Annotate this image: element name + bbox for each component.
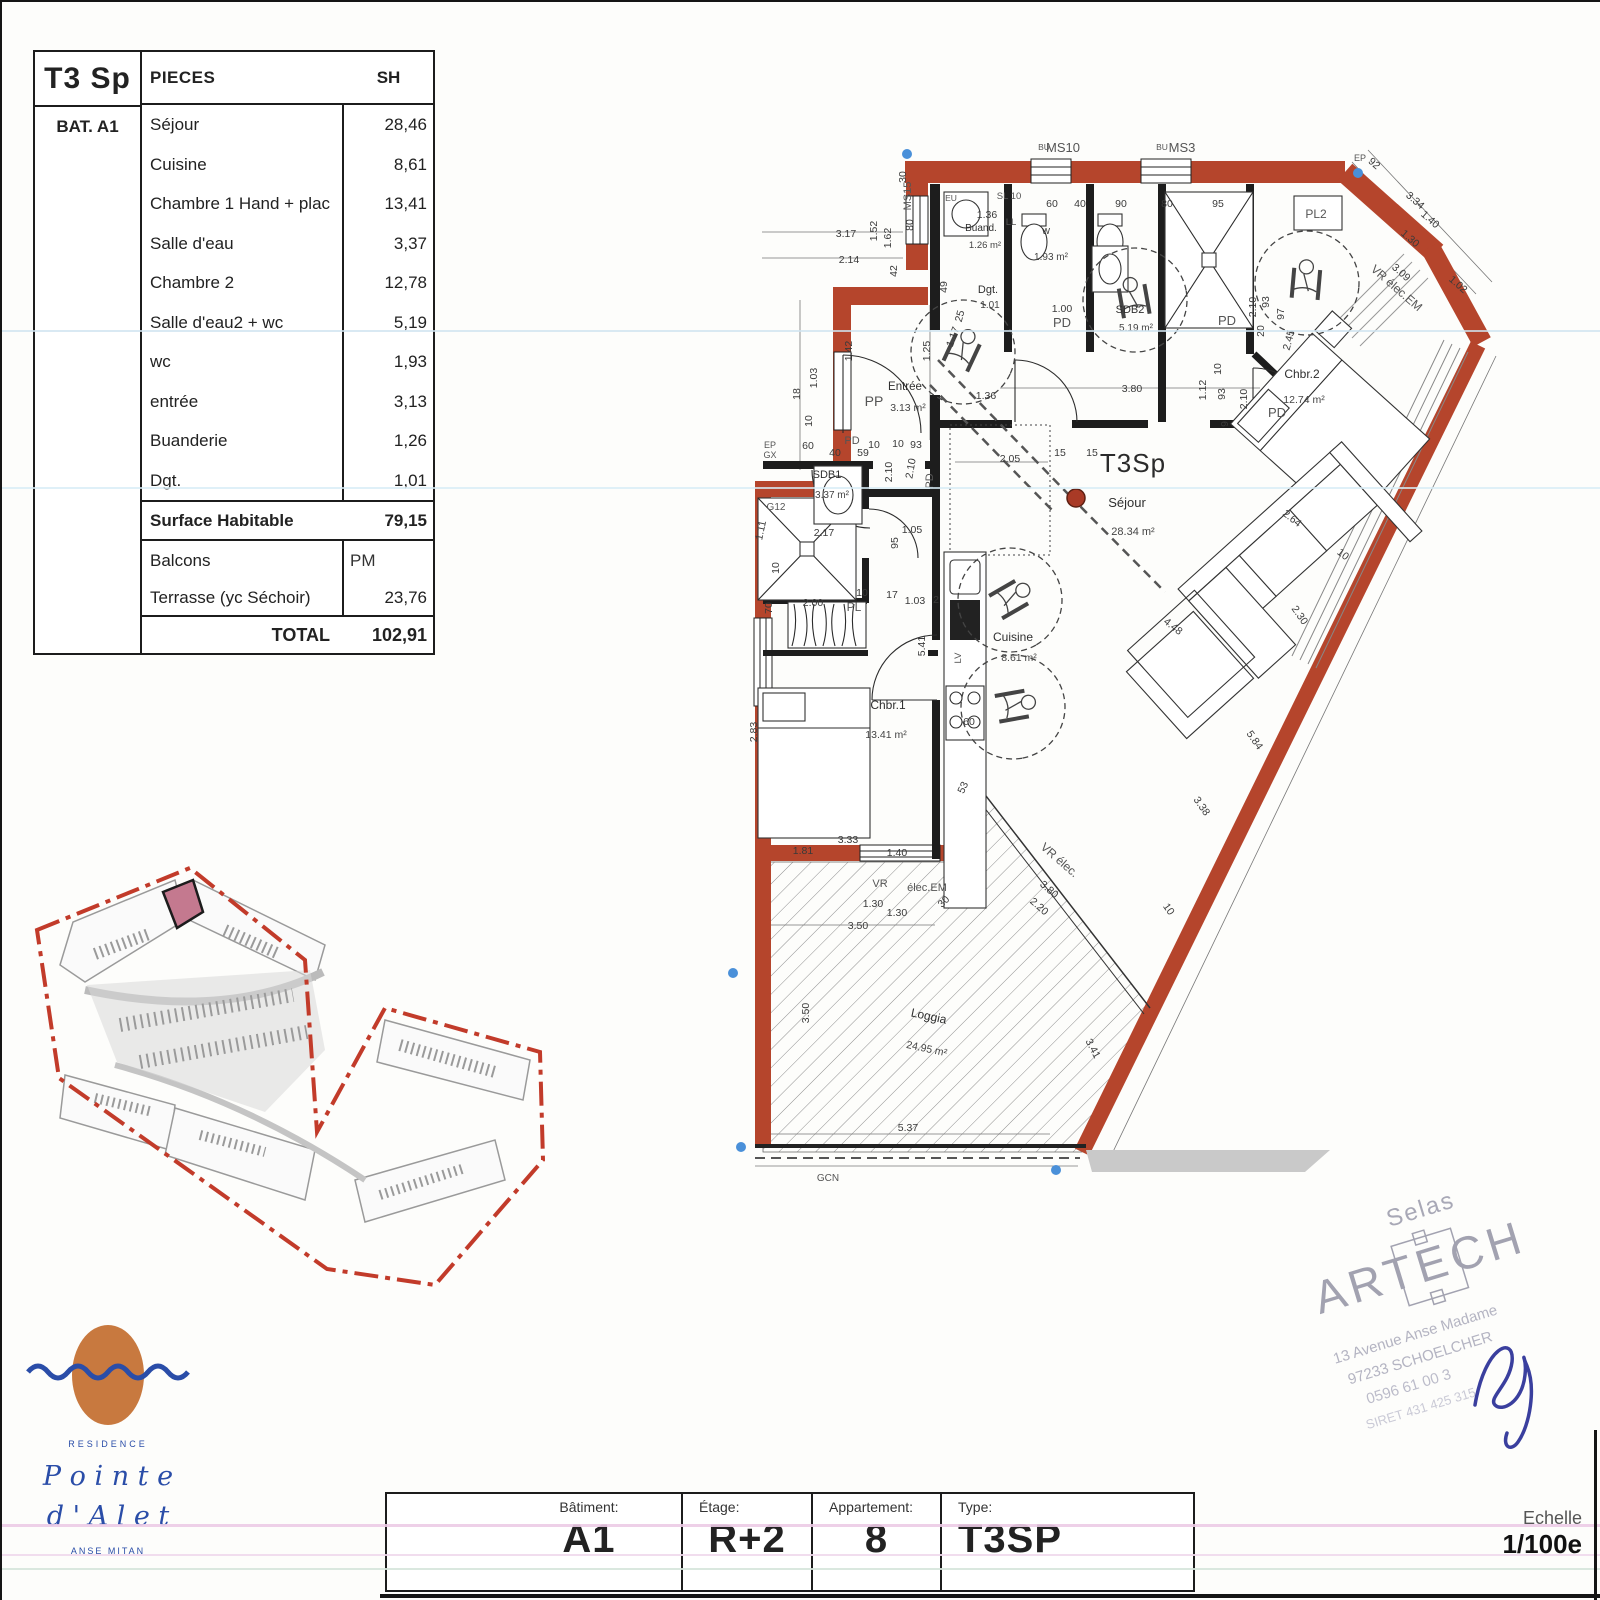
dimension-label: 92	[1366, 155, 1383, 172]
dimension-label: 1.12	[1197, 380, 1209, 401]
table-row: Cuisine8,61	[142, 145, 435, 185]
window-ms10	[1031, 159, 1071, 183]
row-label: Salle d'eau2 + wc	[142, 313, 342, 333]
room-name: SDB1	[813, 469, 842, 481]
dimension-label: 60	[1046, 198, 1058, 210]
title-label: Appartement:	[813, 1499, 940, 1515]
row-label: Buanderie	[142, 431, 342, 451]
plan-tag: PD	[1268, 405, 1286, 420]
dimension-label: 93	[1216, 388, 1228, 400]
row-label: wc	[142, 352, 342, 372]
dimension-label: 10	[1335, 546, 1352, 563]
stove	[946, 686, 984, 740]
dimension-label: 2.10	[1238, 389, 1250, 410]
dimension-label: 49	[938, 281, 950, 293]
title-label: Bâtiment:	[387, 1499, 681, 1515]
room-area: 28.34 m²	[1111, 526, 1155, 538]
row-label: Balcons	[142, 551, 342, 571]
unit-label: T3Sp	[1100, 448, 1166, 478]
bed-chbr1	[758, 688, 870, 838]
table-row: Dgt.1,01	[142, 461, 435, 501]
floor-plan-drawing: T3Sp Séjour28.34 m²Cuisine8.61 m²Chbr.11…	[690, 120, 1500, 1190]
dimension-label: 10	[868, 439, 880, 451]
row-label: TOTAL	[142, 625, 342, 646]
dimension-label: 1.25	[921, 341, 933, 362]
row-label: Chambre 2	[142, 273, 342, 293]
title-cell-appartement: Appartement: 8	[811, 1494, 940, 1590]
dimension-label: 1.30	[863, 898, 884, 910]
dimension-label: 3.17	[836, 228, 857, 240]
structural-column	[1067, 489, 1085, 507]
dimension-label: 2.83	[748, 722, 760, 743]
room-name: Chbr.2	[1284, 367, 1320, 381]
site-plan-inset	[25, 850, 545, 1290]
plan-tag: MS3	[1169, 140, 1196, 155]
row-value: 23,76	[342, 580, 435, 615]
dimension-label: 15	[1086, 447, 1098, 459]
room-name: Buand.	[965, 223, 997, 234]
washbasin	[1092, 246, 1128, 292]
room-name: Dgt.	[978, 284, 998, 296]
plan-tag: LL	[1006, 217, 1017, 228]
dimension-label: 2	[933, 594, 939, 606]
dimension-label: 10	[770, 562, 782, 574]
dimension-label: 2.10	[903, 457, 918, 479]
areas-table: T3 Sp BAT. A1 PIECES SH Séjour28,46 Cuis…	[33, 50, 435, 655]
plan-tag: PD	[1218, 313, 1236, 328]
residence-logo: RESIDENCE P o i n t e d ' A l e t ANSE M…	[20, 1290, 240, 1580]
table-row: entrée3,13	[142, 382, 435, 422]
row-value: 1,26	[342, 421, 435, 461]
table-rows: Séjour28,46 Cuisine8,61 Chambre 1 Hand +…	[142, 105, 435, 502]
room-area: 3.13 m²	[890, 402, 926, 414]
table-row: Séjour28,46	[142, 105, 435, 145]
plan-tag: MS15	[902, 182, 914, 211]
dimension-label: 2.10	[1247, 297, 1259, 318]
dimension-label: 70	[763, 602, 775, 614]
room-name: SDB2	[1116, 304, 1145, 316]
dimension-label: 10	[856, 587, 868, 599]
title-label: Étage:	[683, 1499, 811, 1515]
room-name: W	[1042, 226, 1050, 236]
table-row: Buanderie1,26	[142, 421, 435, 461]
table-row: Salle d'eau3,37	[142, 224, 435, 264]
dimension-label: 9	[1219, 421, 1231, 427]
dimension-label: 1.05	[902, 524, 923, 536]
dimension-label: 1.36	[977, 209, 998, 221]
dimension-label: 80	[904, 219, 916, 231]
plan-tag: élec.EM	[907, 882, 947, 894]
plan-tag: PP	[865, 393, 884, 409]
dimension-label: 1.30	[887, 907, 908, 919]
dimension-label: 3.38	[1191, 794, 1213, 818]
row-value: 28,46	[342, 105, 435, 145]
plan-tag: BU	[1038, 142, 1050, 152]
dimension-label: 30	[897, 171, 909, 183]
row-value: 8,61	[342, 145, 435, 185]
dimension-label: 10	[1212, 363, 1224, 375]
row-value: 3,37	[342, 224, 435, 264]
title-cell-batiment: Bâtiment: A1	[387, 1494, 681, 1590]
dimension-label: 2.05	[1000, 453, 1021, 465]
dimension-label: 95	[889, 537, 901, 549]
row-value: 12,78	[342, 263, 435, 303]
surface-habitable-row: Surface Habitable79,15	[142, 502, 435, 541]
row-label: Chambre 1 Hand + plac	[142, 194, 342, 214]
title-value: 8	[813, 1517, 940, 1562]
page-border-bottom	[380, 1594, 1600, 1598]
room-area: 5.19 m²	[1119, 323, 1154, 334]
row-label: Cuisine	[142, 155, 342, 175]
dimension-label: 3.50	[848, 920, 869, 932]
plan-tag: EU	[945, 193, 957, 203]
dimension-label: 2.45	[1281, 329, 1298, 352]
signature	[1475, 1348, 1531, 1447]
dimension-label: 97	[1275, 308, 1287, 320]
dimension-label: 2.14	[839, 254, 860, 266]
row-value: 1,93	[342, 342, 435, 382]
row-label: entrée	[142, 392, 342, 412]
room-area: 8.61 m²	[1001, 652, 1037, 664]
header-sh: SH	[342, 68, 435, 88]
row-label: Surface Habitable	[142, 511, 342, 531]
dimension-label: 15	[1054, 447, 1066, 459]
title-label: Type:	[942, 1499, 1195, 1515]
row-value: 13,41	[342, 184, 435, 224]
balcons-row: BalconsPM	[142, 541, 435, 580]
room-area: 1.26 m²	[969, 240, 1001, 251]
table-header-row: PIECES SH	[142, 52, 435, 105]
dimension-label: 40	[1074, 198, 1086, 210]
row-value: 1,01	[342, 461, 435, 501]
plan-tag: MS10	[1046, 140, 1080, 155]
dimension-label: 1.62	[882, 228, 894, 249]
dimension-label: 1.52	[868, 221, 880, 242]
table-row: Chambre 1 Hand + plac13,41	[142, 184, 435, 224]
plan-tag: SL 10	[997, 191, 1021, 202]
row-label: Salle d'eau	[142, 234, 342, 254]
dimension-label: 18	[791, 388, 803, 400]
row-value: 3,13	[342, 382, 435, 422]
plan-tag: PL2	[1305, 207, 1327, 221]
areas-table-main: PIECES SH Séjour28,46 Cuisine8,61 Chambr…	[142, 52, 435, 653]
dimension-label: 10	[1160, 901, 1177, 918]
dimension-label: 2.10	[883, 462, 895, 483]
dimension-label: 90	[1115, 198, 1127, 210]
total-row: TOTAL102,91	[142, 617, 435, 653]
dimension-label: 1.40	[887, 847, 908, 859]
plan-tag: PD	[844, 435, 859, 447]
plan-tag: VR	[872, 878, 887, 890]
dimension-label: 93	[1260, 296, 1272, 308]
dimension-label: 1.42	[843, 341, 855, 362]
wheelchair-icon	[1251, 227, 1364, 340]
plan-tag: PL	[847, 600, 862, 614]
scale-label: Echelle	[1442, 1508, 1582, 1529]
dimension-label: 40	[829, 447, 841, 459]
stamp-artech: ARTECH	[1308, 1210, 1532, 1324]
dimension-label: 60	[802, 440, 814, 452]
room-area: 3.37 m²	[815, 490, 850, 501]
plan-tag: G12	[767, 502, 786, 513]
logo-place-text: ANSE MITAN	[71, 1546, 145, 1556]
table-row: Chambre 212,78	[142, 263, 435, 303]
room-name: Séjour	[1108, 495, 1146, 510]
plan-tag: BU	[1156, 142, 1168, 152]
row-label: Dgt.	[142, 471, 342, 491]
logo-name-line2: d ' A l e t	[47, 1501, 170, 1532]
room-name: Entrée	[888, 381, 922, 393]
dimension-label: 95	[1212, 198, 1224, 210]
plan-tag: LV	[953, 652, 964, 664]
logo-residence-text: RESIDENCE	[68, 1439, 148, 1449]
exterior-walkway	[1086, 1150, 1330, 1172]
dimension-label: 3.80	[1122, 383, 1143, 395]
dimension-label: 93	[910, 439, 922, 451]
logo-name-line1: P o i n t e	[42, 1461, 173, 1492]
row-value: PM	[342, 541, 435, 580]
row-value: 79,15	[342, 502, 435, 539]
title-value: A1	[387, 1517, 681, 1562]
dimension-label: 5.41	[916, 636, 928, 657]
plan-tag: GX	[763, 450, 776, 460]
table-row: wc1,93	[142, 342, 435, 382]
row-label: Séjour	[142, 115, 342, 135]
dimension-label: 10	[892, 438, 904, 450]
plan-tag: PD	[1053, 315, 1071, 330]
table-row: Salle d'eau2 + wc5,19	[142, 303, 435, 343]
room-area: 1.01	[980, 300, 1000, 311]
stamp-selas: Selas	[1383, 1186, 1458, 1232]
plan-tag: EP	[764, 440, 776, 450]
room-area: 1.93 m²	[1034, 252, 1069, 263]
dimension-label: 2.17	[814, 527, 835, 539]
header-pieces: PIECES	[142, 68, 342, 88]
plan-tag: EP	[1354, 153, 1366, 163]
title-value: T3SP	[942, 1517, 1195, 1562]
dimension-label: 17	[886, 589, 898, 601]
title-cell-etage: Étage: R+2	[681, 1494, 811, 1590]
title-block: Bâtiment: A1 Étage: R+2 Appartement: 8 T…	[385, 1492, 1195, 1592]
dimension-label: 20	[1255, 325, 1267, 337]
room-name: Chbr.1	[870, 698, 906, 712]
page-border-top	[0, 0, 1600, 2]
dimension-label: 1.03	[808, 368, 820, 389]
kitchen-counter	[944, 552, 986, 908]
dimension-label: 1.00	[1052, 303, 1073, 315]
dimension-label: 3.33	[838, 834, 859, 846]
dimension-label: 1.36	[976, 390, 997, 402]
building-cell: BAT. A1	[35, 107, 140, 146]
room-area: 13.41 m²	[865, 729, 907, 741]
dimension-label: 10	[803, 415, 815, 427]
row-value: 102,91	[342, 617, 435, 653]
row-label: Terrasse (yc Séchoir)	[142, 588, 342, 608]
areas-table-left-column: T3 Sp BAT. A1	[35, 52, 142, 653]
dimension-label: 42	[888, 265, 900, 277]
dimension-label: 5.37	[898, 1122, 919, 1134]
window-ms3	[1141, 159, 1191, 183]
shower-sdb2	[1165, 192, 1253, 328]
dimension-label: 3.50	[800, 1003, 812, 1024]
architect-stamp: Selas ARTECH 13 Avenue Anse Madame 97233…	[1290, 1170, 1600, 1470]
dimension-label: 1.81	[793, 845, 814, 857]
terrasse-row: Terrasse (yc Séchoir)23,76	[142, 580, 435, 617]
title-cell-type: Type: T3SP	[940, 1494, 1195, 1590]
unit-type-cell: T3 Sp	[35, 52, 140, 107]
dimension-label: 80	[1161, 198, 1173, 210]
scale-value: 1/100e	[1442, 1529, 1582, 1560]
dimension-label: 1.17	[944, 325, 962, 348]
room-name: Cuisine	[993, 630, 1033, 644]
plan-tag: GCN	[817, 1173, 839, 1184]
dimension-label: 25	[953, 309, 968, 324]
row-value: 5,19	[342, 303, 435, 343]
dimension-label: 1.03	[905, 595, 926, 607]
stamp-rotated-group: Selas ARTECH 13 Avenue Anse Madame 97233…	[1295, 1170, 1565, 1436]
plan-tag: PD	[924, 473, 936, 488]
dimension-label: 2.00	[803, 597, 824, 609]
floor-plan-sheet: T3 Sp BAT. A1 PIECES SH Séjour28,46 Cuis…	[0, 0, 1600, 1600]
title-value: R+2	[683, 1517, 811, 1562]
room-area: 12.74 m²	[1283, 394, 1325, 406]
dimension-label: 5.84	[1244, 728, 1266, 752]
dimension-label: 60	[963, 716, 975, 728]
page-border-left	[0, 0, 2, 1600]
scale-indicator: Echelle 1/100e	[1442, 1508, 1582, 1560]
